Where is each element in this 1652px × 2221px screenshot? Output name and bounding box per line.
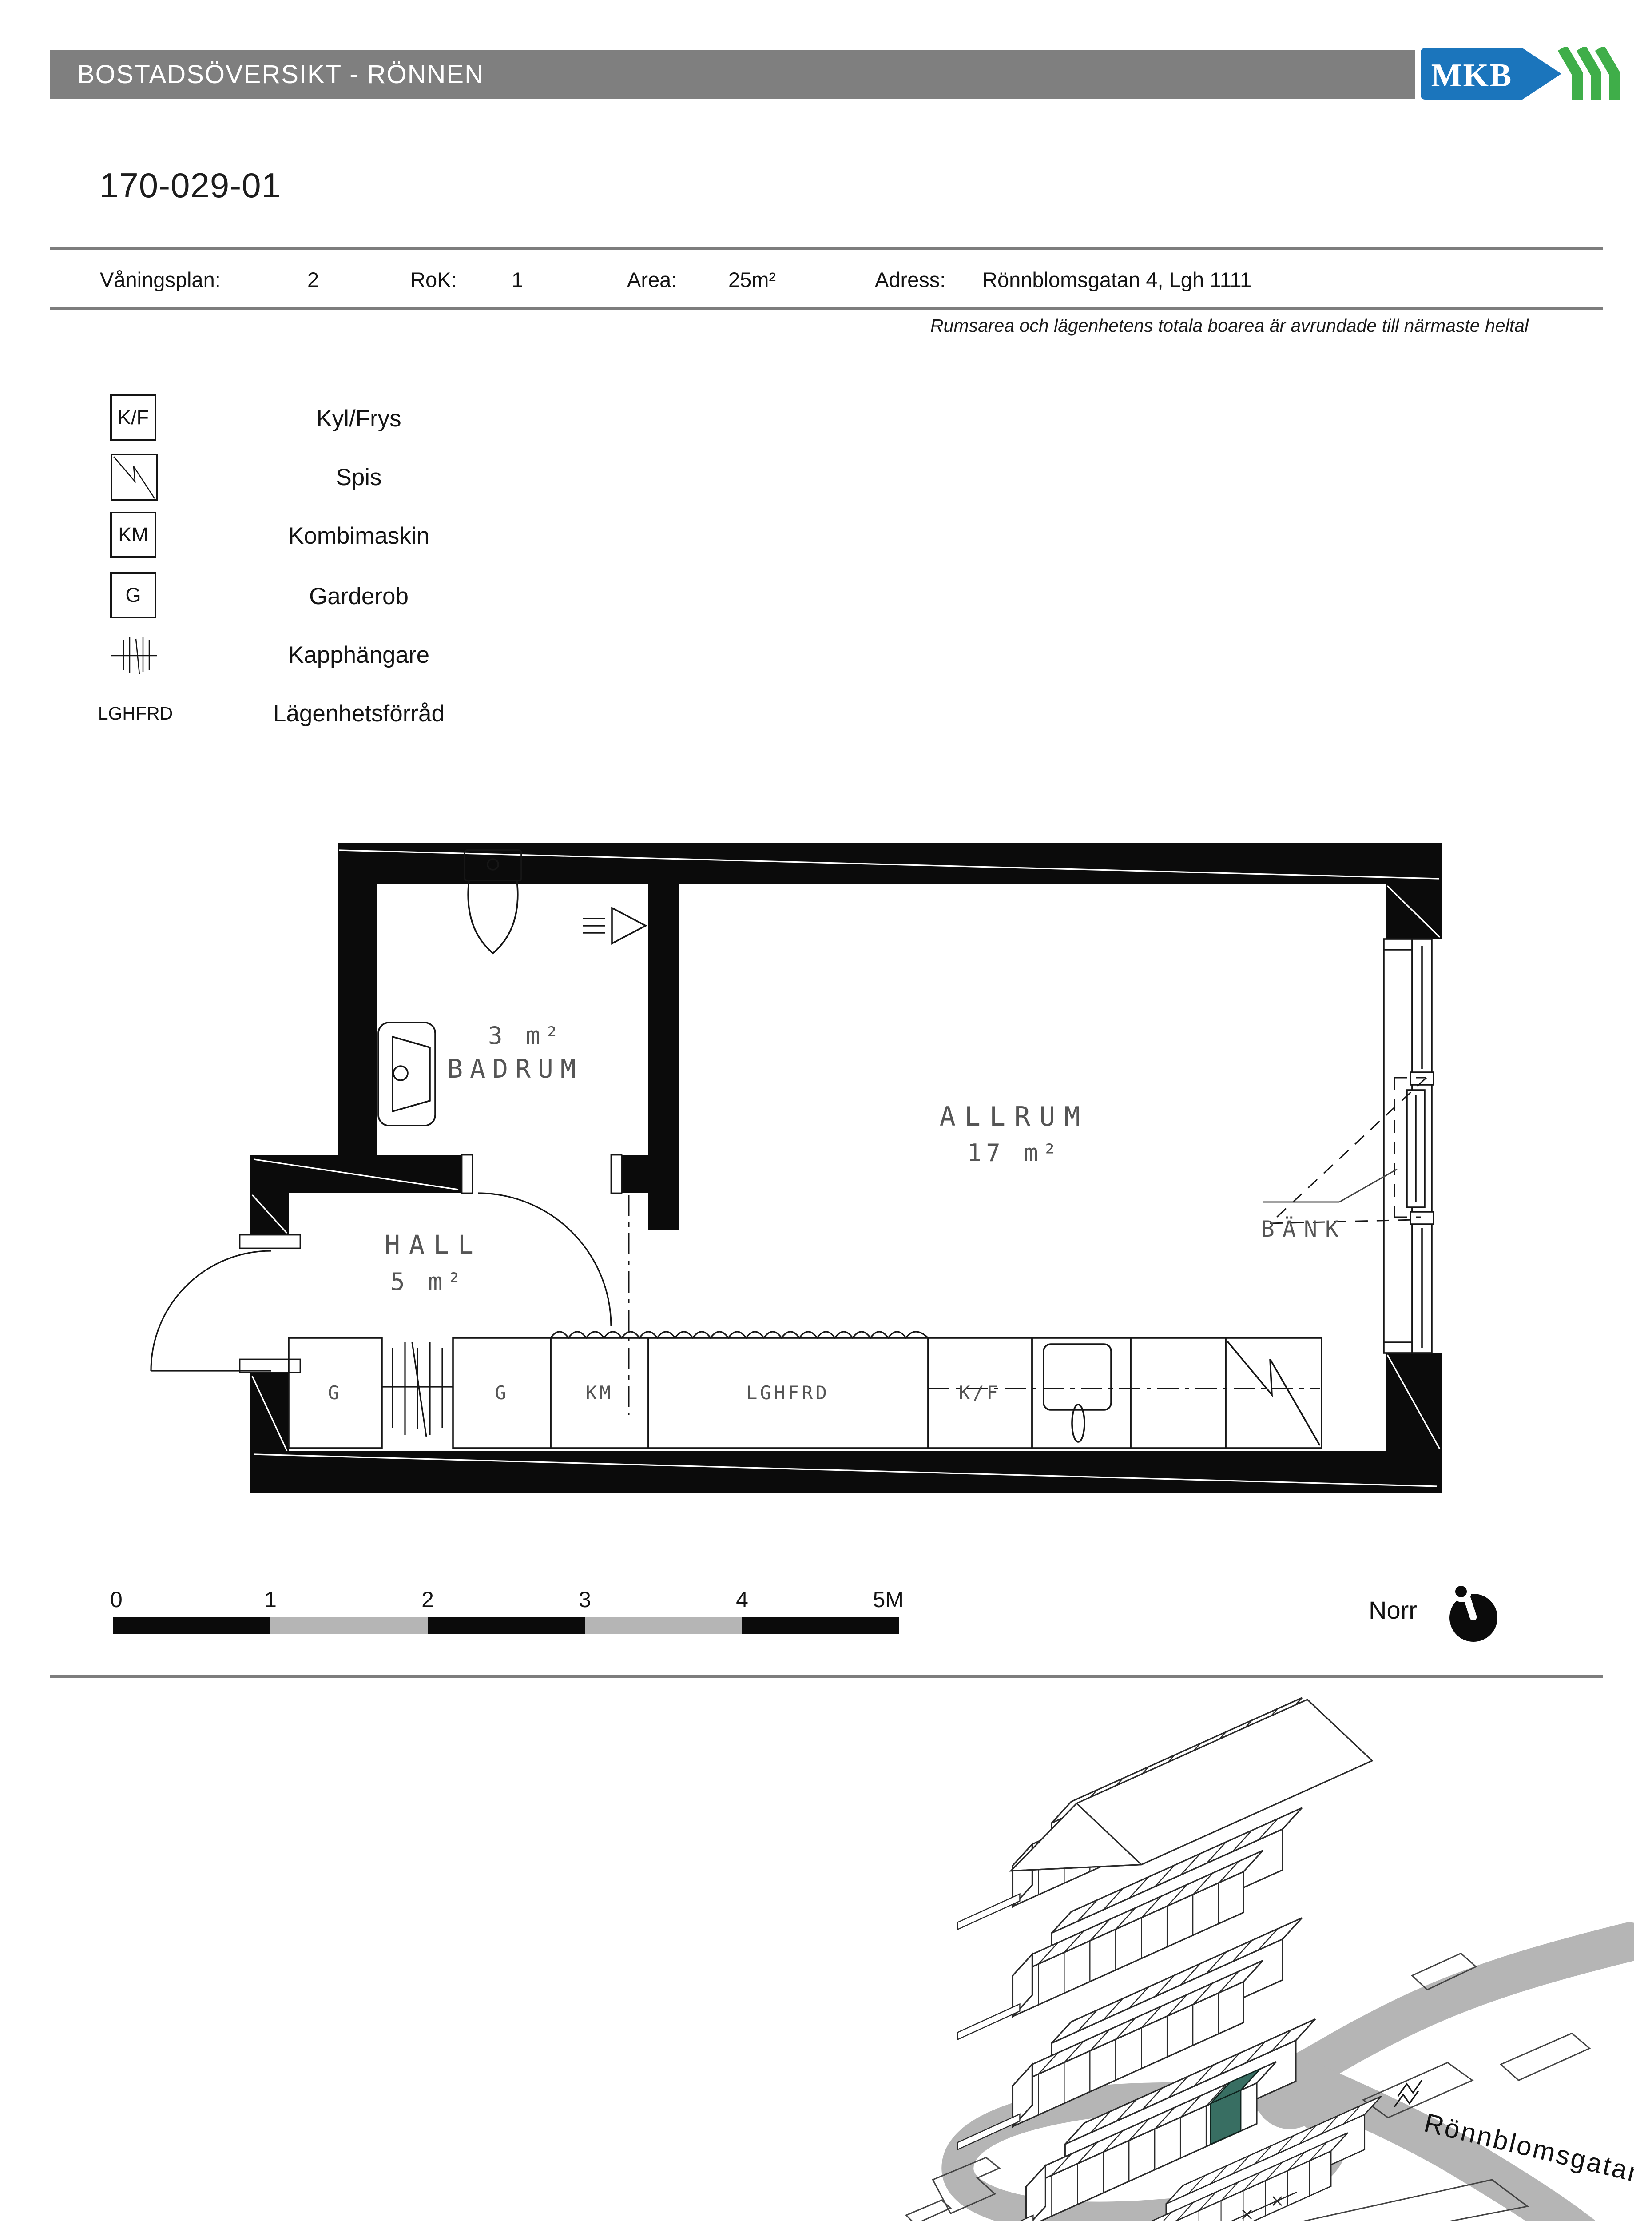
spis-icon: [110, 453, 158, 501]
kitchen-sink-icon: [1044, 1344, 1111, 1410]
badrum-name-label: BADRUM: [447, 1054, 583, 1084]
area-value: 25m²: [728, 267, 776, 292]
area-label: Area:: [627, 267, 677, 292]
scale-tick-2: 2: [421, 1587, 434, 1612]
badrum-door-jamb-left: [462, 1155, 473, 1193]
logo-stripe-2: [1581, 48, 1596, 100]
allrum-area-label: 17 m²: [967, 1139, 1062, 1167]
legend-row-spis: Spis: [110, 453, 643, 503]
legend-row-kf: K/F Kyl/Frys: [110, 394, 643, 444]
badrum-door-swing: [478, 1193, 611, 1326]
hall-name-label: HALL: [385, 1230, 482, 1260]
legend-label-spis: Spis: [234, 453, 483, 501]
flex-wall-wave: [551, 1332, 928, 1338]
logo-stripe-1: [1562, 48, 1577, 100]
legend-row-km: KM Kombimaskin: [110, 512, 643, 561]
page: BOSTADSÖVERSIKT - RÖNNEN MKB 170-029-01 …: [0, 0, 1652, 2221]
apartment-id: 170-029-01: [99, 165, 281, 206]
wall-top: [338, 843, 1442, 884]
north-label: Norr: [1369, 1596, 1417, 1624]
floor-plan: 3 m² BADRUM ALLRUM 17 m² HALL 5 m² BÄNK …: [133, 840, 1457, 1501]
walls: [250, 843, 1442, 1493]
counter-section: [1131, 1338, 1226, 1448]
scale-seg-5: [742, 1617, 899, 1634]
lghfrd-label: LGHFRD: [746, 1382, 830, 1404]
rounding-note: Rumsarea och lägenhetens totala boarea ä…: [930, 315, 1529, 336]
g2-label: G: [495, 1382, 508, 1404]
sink-section: [1032, 1338, 1131, 1448]
km-label: KM: [586, 1382, 614, 1404]
entrance-door-swing: [151, 1251, 271, 1371]
legend-label-garderob: Garderob: [234, 572, 483, 620]
kf-box-icon: K/F: [110, 394, 156, 441]
km-box-icon: KM: [110, 512, 156, 558]
lghfrd-text-icon: LGHFRD: [89, 689, 182, 737]
logo-text: MKB: [1431, 57, 1513, 94]
legend-label-kylfrys: Kyl/Frys: [234, 394, 483, 442]
entrance-sill-top: [240, 1235, 300, 1248]
legend-row-kapphangare: Kapphängare: [110, 631, 643, 681]
scale-tick-0: 0: [110, 1587, 123, 1612]
bank-label: BÄNK: [1261, 1216, 1346, 1242]
legend-label-kapphangare: Kapphängare: [234, 631, 483, 679]
rok-label: RoK:: [410, 267, 457, 292]
wall-badrum-left: [338, 843, 377, 1155]
g-box-icon: G: [110, 572, 156, 618]
kapphangare-icon: [110, 631, 158, 679]
wall-badrum-jamb: [622, 1155, 648, 1193]
allrum-name-label: ALLRUM: [940, 1101, 1089, 1132]
address-value: Rönnblomsgatan 4, Lgh 1111: [982, 267, 1251, 292]
address-label: Adress:: [875, 267, 945, 292]
scale-tick-1: 1: [264, 1587, 277, 1612]
scale-tick-5: 5M: [873, 1587, 904, 1612]
wall-bottom: [250, 1451, 1442, 1493]
header-bar: BOSTADSÖVERSIKT - RÖNNEN: [50, 50, 1415, 99]
scale-tick-4: 4: [736, 1587, 748, 1612]
mkb-logo: MKB: [1419, 47, 1628, 100]
logo-stripe-3: [1600, 48, 1615, 100]
washbasin-icon: [378, 1023, 435, 1126]
bank-leader-line: [1263, 1169, 1397, 1202]
north-compass-icon: [1444, 1585, 1503, 1645]
badrum-area-label: 3 m²: [488, 1022, 564, 1050]
scale-tick-3: 3: [579, 1587, 591, 1612]
spis-section: [1226, 1338, 1322, 1448]
rule-bottom: [50, 307, 1603, 310]
spis-icon-plan: [1227, 1341, 1320, 1445]
floor-label: Våningsplan:: [100, 267, 221, 292]
floor-value: 2: [307, 267, 319, 292]
kf-label: K/F: [959, 1382, 1001, 1404]
rok-value: 1: [512, 267, 523, 292]
badrum-door-jamb-right: [611, 1155, 622, 1193]
scale-seg-1: [113, 1617, 270, 1634]
section-divider: [50, 1675, 1603, 1678]
legend-label-kombimaskin: Kombimaskin: [234, 512, 483, 560]
rule-top: [50, 247, 1603, 250]
roof-prism: [1011, 1700, 1372, 1871]
air-valve-icon: [583, 908, 646, 943]
legend-row-g: G Garderob: [110, 572, 643, 622]
window-wall: [1384, 939, 1434, 1353]
g1-label: G: [328, 1382, 342, 1404]
site-map: Rönnblomsgatan: [879, 1683, 1634, 2221]
wall-badrum-right: [648, 843, 679, 1230]
scale-seg-2: [270, 1617, 428, 1634]
legend-label-lagenhetsforrad: Lägenhetsförråd: [234, 689, 483, 737]
hall-area-label: 5 m²: [390, 1268, 466, 1296]
info-row: Våningsplan: 2 RoK: 1 Area: 25m² Adress:…: [50, 254, 1603, 306]
scale-seg-3: [428, 1617, 585, 1634]
scale-seg-4: [585, 1617, 742, 1634]
scale-bar: 0 1 2 3 4 5M: [107, 1581, 906, 1648]
page-title: BOSTADSÖVERSIKT - RÖNNEN: [77, 50, 484, 99]
coat-hanger-plan-icon: [382, 1342, 453, 1437]
legend-row-lghfrd: LGHFRD Lägenhetsförråd: [110, 689, 643, 739]
